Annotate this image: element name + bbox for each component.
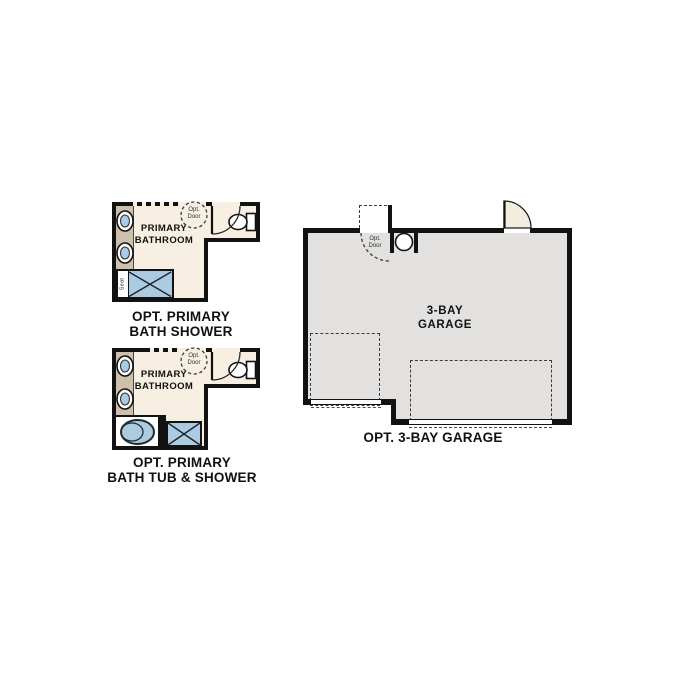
- wall-segment: [388, 205, 392, 233]
- garage-door-dashed-line: [409, 427, 552, 428]
- plan-caption: OPT. PRIMARY BATH TUB & SHOWER: [82, 456, 282, 485]
- wall-segment: [204, 238, 260, 242]
- optional-door-dashed-wall: [128, 202, 178, 206]
- door-swing-arc: [504, 201, 531, 228]
- water-heater-label: WH: [394, 239, 414, 246]
- garage-door-dashed-line: [311, 407, 381, 408]
- shower-seat: Seat: [118, 271, 129, 297]
- wall-segment: [530, 228, 572, 233]
- wall-segment: [204, 238, 208, 302]
- wall-segment: [112, 348, 116, 450]
- opt-door-label: Opt. Door: [181, 353, 207, 366]
- wall-segment: [204, 384, 208, 450]
- wall-segment: [303, 228, 360, 233]
- wall-segment: [112, 298, 208, 302]
- wall-segment: [390, 228, 504, 233]
- wall-segment: [567, 228, 572, 424]
- wall-segment: [206, 202, 212, 206]
- garage-bay-outline: [310, 333, 380, 406]
- wall-segment: [552, 419, 572, 425]
- room-label: 3-BAY GARAGE: [385, 305, 505, 332]
- wall-segment: [303, 228, 308, 404]
- wall-segment: [206, 348, 212, 352]
- wall-segment: [112, 202, 116, 302]
- shower: [166, 421, 202, 447]
- wall-segment: [158, 415, 166, 450]
- seat-label: Seat: [120, 278, 126, 291]
- garage-door-single: [311, 399, 381, 405]
- wall-segment: [391, 419, 409, 425]
- wall-segment: [204, 384, 260, 388]
- wall-segment: [112, 348, 145, 352]
- wall-segment: [256, 202, 260, 242]
- wall-segment: [112, 202, 128, 206]
- toilet-room-floor: [208, 348, 256, 388]
- opt-door-label: Opt. Door: [181, 207, 207, 220]
- optional-door-dashed-wall: [145, 348, 178, 352]
- opt-door-label: Opt. Door: [362, 236, 388, 249]
- wall-segment: [112, 415, 158, 417]
- water-heater-niche-wall: [414, 233, 418, 253]
- room-label: PRIMARY BATHROOM: [119, 223, 209, 246]
- wall-segment: [256, 348, 260, 388]
- tub-deck: [116, 417, 158, 446]
- toilet-room-floor: [208, 202, 256, 242]
- garage-bay-outline: [410, 360, 552, 421]
- room-label: PRIMARY BATHROOM: [119, 369, 209, 392]
- garage-door-double: [409, 419, 552, 425]
- wall-segment: [303, 399, 311, 405]
- plan-caption: OPT. 3-BAY GARAGE: [333, 431, 533, 446]
- plan-caption: OPT. PRIMARY BATH SHOWER: [81, 310, 281, 339]
- floor-plan-canvas: Seat PRIMARY BATHROOM Opt. Door OPT. PRI…: [0, 0, 687, 687]
- shower: Seat: [116, 269, 174, 299]
